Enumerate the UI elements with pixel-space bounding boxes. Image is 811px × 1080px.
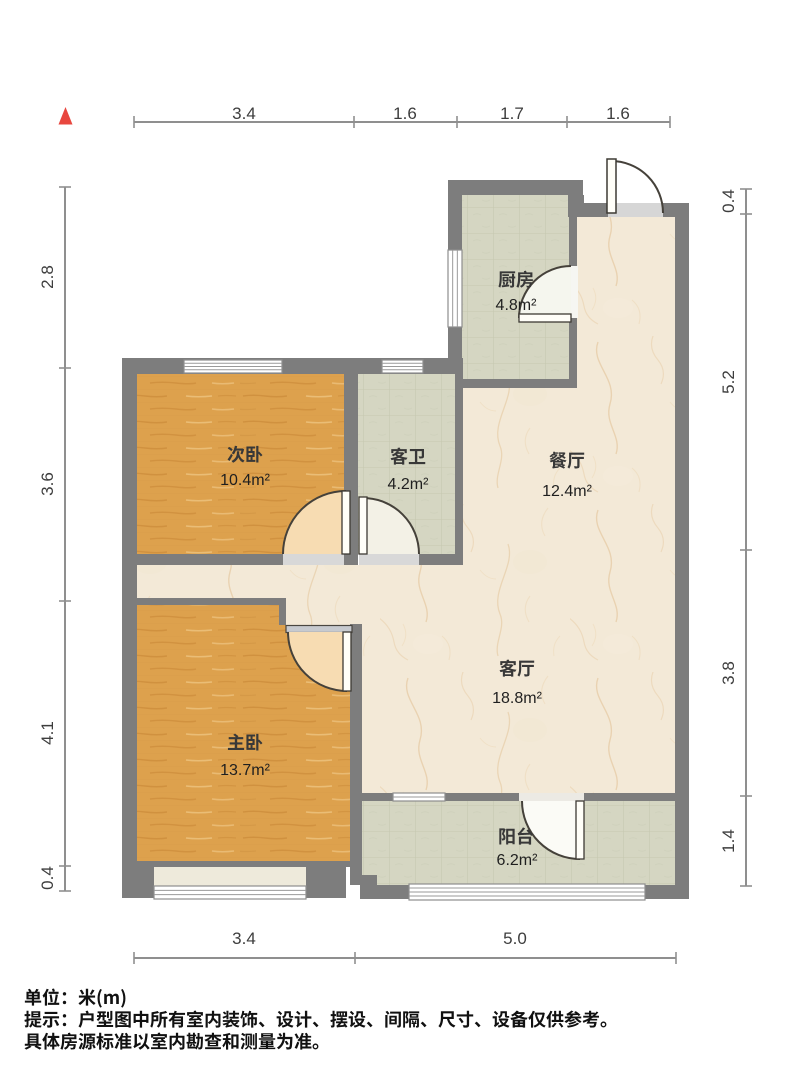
svg-text:1.6: 1.6 <box>606 104 630 123</box>
svg-text:1.7: 1.7 <box>500 104 524 123</box>
svg-text:3.4: 3.4 <box>232 104 256 123</box>
svg-text:0.4: 0.4 <box>38 866 57 890</box>
svg-text:13.7m²: 13.7m² <box>220 762 270 779</box>
svg-text:5.0: 5.0 <box>503 929 527 948</box>
svg-text:12.4m²: 12.4m² <box>542 483 592 500</box>
svg-text:1.6: 1.6 <box>393 104 417 123</box>
svg-text:1.4: 1.4 <box>719 829 738 853</box>
svg-text:4.2m²: 4.2m² <box>388 476 430 493</box>
svg-text:3.6: 3.6 <box>38 472 57 496</box>
svg-text:4.8m²: 4.8m² <box>496 297 538 314</box>
svg-text:3.4: 3.4 <box>232 929 256 948</box>
svg-text:5.2: 5.2 <box>719 370 738 394</box>
svg-text:10.4m²: 10.4m² <box>220 472 270 489</box>
svg-text:6.2m²: 6.2m² <box>497 852 539 869</box>
svg-text:18.8m²: 18.8m² <box>492 690 542 707</box>
svg-text:0.4: 0.4 <box>719 189 738 213</box>
svg-text:3.8: 3.8 <box>719 661 738 685</box>
svg-text:4.1: 4.1 <box>38 721 57 745</box>
svg-text:2.8: 2.8 <box>38 265 57 289</box>
